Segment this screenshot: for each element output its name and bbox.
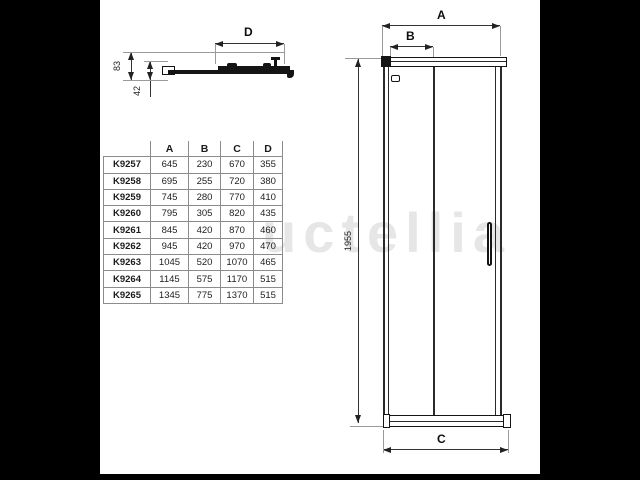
dim-a-label: A bbox=[437, 8, 446, 22]
dimension-cell: 645 bbox=[151, 157, 189, 173]
model-cell: K9264 bbox=[104, 271, 151, 287]
dimension-cell: 380 bbox=[254, 173, 283, 189]
dimension-cell: 1370 bbox=[221, 287, 254, 303]
dimension-cell: 230 bbox=[189, 157, 221, 173]
arrowhead-down-icon bbox=[147, 72, 153, 80]
dimension-cell: 435 bbox=[254, 206, 283, 222]
arrowhead-down-icon bbox=[355, 415, 361, 423]
extension-line bbox=[382, 26, 383, 56]
extension-line bbox=[508, 430, 509, 453]
door-handle bbox=[487, 222, 492, 266]
dimension-cell: 575 bbox=[189, 271, 221, 287]
dim-height-label: 1955 bbox=[343, 231, 353, 251]
extension-line bbox=[350, 426, 385, 427]
dimension-cell: 845 bbox=[151, 222, 189, 238]
table-row: K926513457751370515 bbox=[104, 287, 283, 303]
table-row: K9258695255720380 bbox=[104, 173, 283, 189]
arrowhead-left-icon bbox=[383, 447, 391, 453]
arrowhead-right-icon bbox=[276, 41, 284, 47]
dimension-cell: 515 bbox=[254, 271, 283, 287]
dimension-cell: 820 bbox=[221, 206, 254, 222]
dimension-cell: 520 bbox=[189, 255, 221, 271]
size-table: ABCD K9257645230670355K9258695255720380K… bbox=[103, 141, 283, 304]
dimension-cell: 280 bbox=[189, 189, 221, 205]
top-rail bbox=[381, 57, 507, 67]
model-column-header bbox=[104, 141, 151, 157]
arrowhead-right-icon bbox=[425, 44, 433, 50]
arrowhead-up-icon bbox=[147, 61, 153, 69]
dim-d-label: D bbox=[244, 25, 253, 39]
dimension-cell: 460 bbox=[254, 222, 283, 238]
bottom-rail-left-cap bbox=[383, 414, 390, 428]
dimension-cell: 465 bbox=[254, 255, 283, 271]
profile-roller bbox=[263, 63, 271, 66]
right-post-line bbox=[500, 67, 502, 416]
model-cell: K9257 bbox=[104, 157, 151, 173]
arrowhead-up-icon bbox=[128, 52, 134, 60]
hinge-bracket bbox=[391, 75, 400, 82]
dim-d-line bbox=[215, 43, 284, 44]
dimension-cell: 745 bbox=[151, 189, 189, 205]
profile-bracket-top bbox=[271, 57, 280, 60]
dim-c-line bbox=[383, 449, 508, 450]
arrowhead-left-icon bbox=[215, 41, 223, 47]
panel-divider-line bbox=[433, 67, 435, 416]
dimension-cell: 770 bbox=[221, 189, 254, 205]
arrowhead-left-icon bbox=[382, 23, 390, 29]
wall-profile-block bbox=[381, 56, 391, 68]
dim-height-line bbox=[358, 59, 359, 423]
arrowhead-left-icon bbox=[390, 44, 398, 50]
dimension-cell: 695 bbox=[151, 173, 189, 189]
profile-bottom-rail-bar bbox=[168, 70, 293, 74]
size-table-header: ABCD bbox=[104, 141, 283, 157]
dim-column-header: B bbox=[189, 141, 221, 157]
arrowhead-right-icon bbox=[492, 23, 500, 29]
dimension-cell: 255 bbox=[189, 173, 221, 189]
dimension-cell: 1345 bbox=[151, 287, 189, 303]
drawing-layer: D 83 42 bbox=[100, 0, 540, 474]
dimension-cell: 870 bbox=[221, 222, 254, 238]
dimension-cell: 1070 bbox=[221, 255, 254, 271]
dim-column-header: C bbox=[221, 141, 254, 157]
dimension-cell: 410 bbox=[254, 189, 283, 205]
dimension-cell: 795 bbox=[151, 206, 189, 222]
dimension-cell: 1045 bbox=[151, 255, 189, 271]
model-cell: K9265 bbox=[104, 287, 151, 303]
extension-line bbox=[284, 44, 285, 64]
extension-line bbox=[500, 26, 501, 56]
arrowhead-right-icon bbox=[500, 447, 508, 453]
dimension-cell: 470 bbox=[254, 238, 283, 254]
table-row: K926310455201070465 bbox=[104, 255, 283, 271]
extension-line bbox=[144, 61, 168, 62]
profile-slider-bar bbox=[218, 66, 290, 70]
dim-c-label: C bbox=[437, 432, 446, 446]
table-row: K9262945420970470 bbox=[104, 238, 283, 254]
size-table-body: K9257645230670355K9258695255720380K92597… bbox=[104, 157, 283, 304]
dimension-cell: 720 bbox=[221, 173, 254, 189]
arrowhead-up-icon bbox=[355, 59, 361, 67]
profile-roller bbox=[227, 63, 237, 66]
dimension-cell: 420 bbox=[189, 238, 221, 254]
dimension-cell: 420 bbox=[189, 222, 221, 238]
dimension-cell: 1145 bbox=[151, 271, 189, 287]
profile-right-foot bbox=[287, 70, 294, 78]
model-cell: K9260 bbox=[104, 206, 151, 222]
dimension-cell: 305 bbox=[189, 206, 221, 222]
extension-line bbox=[123, 80, 168, 81]
video-frame: { "watermark": { "text": "uctellia" }, "… bbox=[0, 0, 640, 480]
drawing-canvas: uctellia D 83 42 bbox=[100, 0, 540, 474]
left-post-line bbox=[388, 67, 389, 417]
table-row: K9257645230670355 bbox=[104, 157, 283, 173]
dim-42-label: 42 bbox=[132, 86, 142, 96]
top-rail-inner-line bbox=[382, 61, 506, 62]
dim-83-label: 83 bbox=[112, 61, 122, 71]
bottom-rail-right-cap bbox=[503, 414, 511, 428]
dimension-cell: 1170 bbox=[221, 271, 254, 287]
model-cell: K9259 bbox=[104, 189, 151, 205]
model-cell: K9263 bbox=[104, 255, 151, 271]
table-row: K926411455751170515 bbox=[104, 271, 283, 287]
dimension-cell: 970 bbox=[221, 238, 254, 254]
dimension-cell: 515 bbox=[254, 287, 283, 303]
dim-a-line bbox=[382, 25, 500, 26]
dim-column-header: A bbox=[151, 141, 189, 157]
model-cell: K9258 bbox=[104, 173, 151, 189]
model-cell: K9261 bbox=[104, 222, 151, 238]
dim-column-header: D bbox=[254, 141, 283, 157]
extension-line bbox=[345, 58, 382, 59]
table-row: K9261845420870460 bbox=[104, 222, 283, 238]
table-row: K9260795305820435 bbox=[104, 206, 283, 222]
dimension-cell: 355 bbox=[254, 157, 283, 173]
dim-b-label: B bbox=[406, 29, 415, 43]
bottom-rail-inner-line bbox=[385, 421, 509, 422]
table-row: K9259745280770410 bbox=[104, 189, 283, 205]
dimension-cell: 945 bbox=[151, 238, 189, 254]
extension-line bbox=[433, 47, 434, 57]
right-post-line bbox=[495, 67, 496, 416]
extension-line bbox=[215, 44, 216, 64]
left-post-line bbox=[383, 67, 385, 417]
extension-line bbox=[383, 430, 384, 453]
model-cell: K9262 bbox=[104, 238, 151, 254]
table-header-row: ABCD bbox=[104, 141, 283, 157]
dimension-cell: 775 bbox=[189, 287, 221, 303]
arrowhead-down-icon bbox=[128, 72, 134, 80]
dimension-cell: 670 bbox=[221, 157, 254, 173]
extension-line bbox=[123, 52, 284, 53]
